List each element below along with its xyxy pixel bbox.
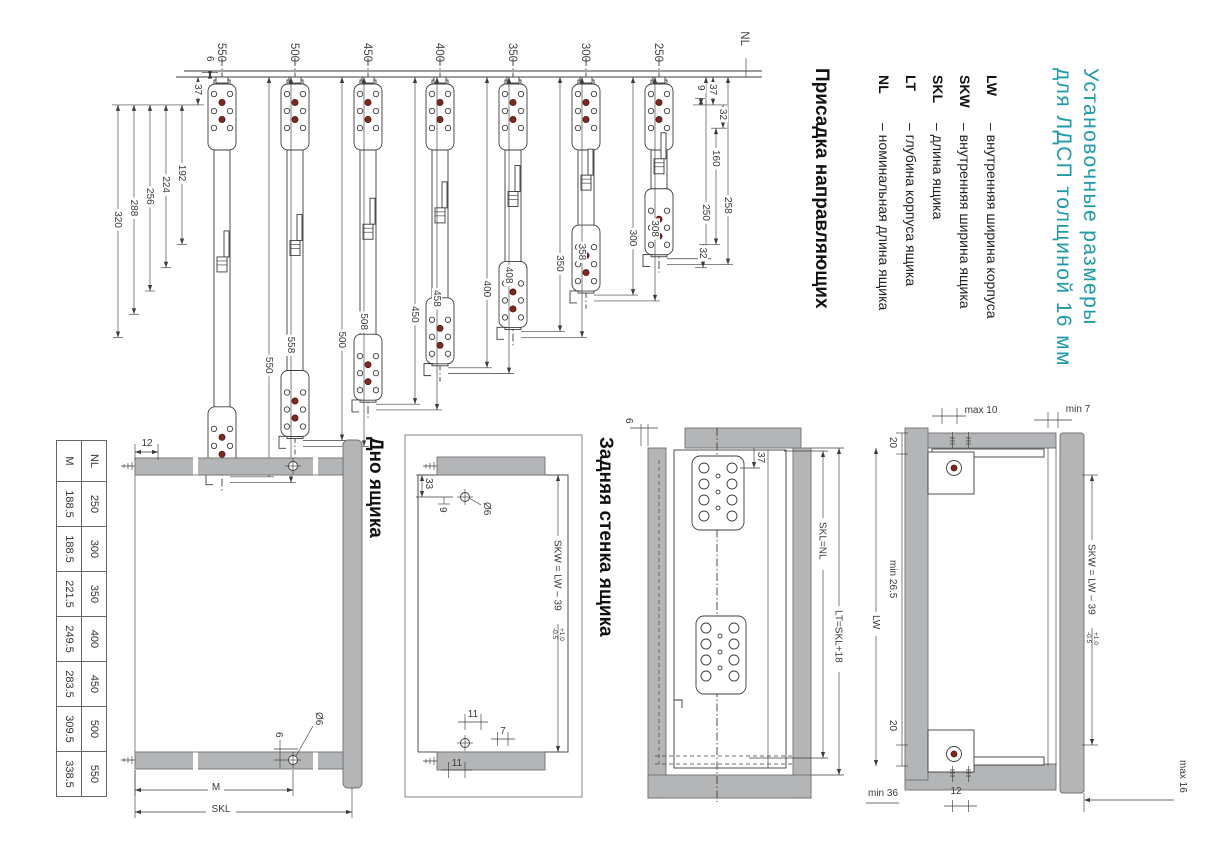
dim-label: 9 — [695, 85, 706, 91]
side-view-diagram: SKL=NL LT=SKL+18 37 6 — [619, 405, 864, 815]
table-value-cell: 300 — [82, 527, 107, 572]
table-value-cell: 188.5 — [57, 482, 82, 527]
legend-abbr: LT — [903, 75, 919, 123]
dim-label: 558 — [285, 337, 296, 354]
nl-m-table-container: NL250300350400450500550M188.5188.5221.52… — [56, 440, 107, 797]
dim-label: 160 — [710, 150, 721, 167]
front-facade-panel — [1060, 433, 1084, 793]
dim-label: SKL — [212, 804, 231, 815]
dim-label: 12 — [141, 438, 153, 449]
dim-label: min 36 — [868, 788, 898, 799]
screw-icon — [423, 462, 437, 470]
cabinet-bottom-panel — [648, 448, 666, 798]
legend-abbr: SKL — [930, 75, 946, 123]
table-value-cell: 550 — [82, 752, 107, 797]
dim-label: 320 — [112, 211, 123, 228]
dim-label: 508 — [358, 313, 369, 330]
legend-item: LT– глубина корпуса ящика — [903, 75, 919, 286]
drawer-front-panel — [685, 428, 801, 448]
legend-item: SKW– внутренняя ширина ящика — [957, 75, 973, 309]
rail-row-label: 400 — [433, 43, 445, 62]
table-value-cell: 250 — [82, 482, 107, 527]
dim-label: SKW = LW – 39 — [1086, 544, 1097, 615]
dim-label: M — [212, 782, 220, 793]
rail-row-label: 500 — [288, 43, 300, 62]
screw-icon — [121, 756, 135, 764]
tolerance-upper: +1.0 — [558, 628, 565, 641]
dim-label: SKW = LW – 39 — [552, 540, 563, 611]
table-header-cell: M — [57, 441, 82, 482]
dim-label: 256 — [144, 188, 155, 205]
dim-label: 358 — [576, 244, 587, 261]
rail-row-label: 250 — [652, 43, 664, 62]
dim-label: 224 — [160, 176, 171, 193]
rails-axis-label: NL — [738, 31, 750, 46]
dim-label: max 16 — [1177, 760, 1188, 793]
dim-label: 308 — [649, 220, 660, 237]
dim-label: 11 — [452, 758, 463, 769]
dim-label: 408 — [503, 267, 514, 284]
table-value-cell: 221.5 — [57, 572, 82, 617]
side-wall-right — [135, 752, 343, 769]
page: Установочные размеры для ЛДСП толщиной 1… — [0, 0, 1224, 858]
rail-row-label: 550 — [215, 43, 227, 62]
legend-item: NL– номинальная длина ящика — [876, 75, 892, 310]
dim-label: 6 — [273, 732, 284, 738]
dim-label: 32 — [697, 247, 708, 259]
tolerance-lower: -0.5 — [551, 628, 558, 640]
legend-desc: – глубина корпуса ящика — [903, 123, 919, 286]
side-wall-left — [437, 457, 545, 475]
table-value-cell: 188.5 — [57, 527, 82, 572]
front-panel — [343, 440, 362, 788]
legend-abbr: NL — [876, 75, 892, 123]
dim-label: 20 — [887, 437, 898, 449]
legend-abbr: LW — [984, 75, 1000, 123]
rail-row-label: 450 — [361, 43, 373, 62]
cabinet-back — [648, 775, 811, 798]
dim-label: 7 — [500, 726, 506, 737]
table-header-cell: NL — [82, 441, 107, 482]
dim-label: SKL=NL — [817, 522, 828, 560]
legend-desc: – длина ящика — [930, 123, 946, 219]
dim-label: 300 — [627, 230, 638, 247]
table-value-cell: 309.5 — [57, 707, 82, 752]
dim-label: 400 — [481, 281, 492, 298]
cabinet-top-panel — [793, 448, 811, 798]
table-value-cell: 338.5 — [57, 752, 82, 797]
dim-label: 500 — [336, 331, 347, 348]
dim-label: 192 — [176, 165, 187, 182]
dim-label: 11 — [468, 709, 479, 720]
rail-row-label: 350 — [506, 43, 518, 62]
dim-label: LW — [870, 615, 881, 630]
back-wall-panel — [418, 475, 568, 752]
dim-label: 6 — [204, 56, 215, 62]
table-value-cell: 249.5 — [57, 617, 82, 662]
tolerance-lower: -0.5 — [1085, 632, 1092, 644]
table-value-cell: 283.5 — [57, 662, 82, 707]
screw-icon — [423, 757, 437, 765]
rail-row-label: 300 — [579, 43, 591, 62]
table-value-cell: 450 — [82, 662, 107, 707]
dim-label: min 7 — [1066, 404, 1091, 415]
rotated-sheet: Установочные размеры для ЛДСП толщиной 1… — [0, 0, 1224, 858]
cabinet-back-panel — [905, 428, 928, 780]
legend-item: LW– внутренняя ширина корпуса — [984, 75, 1000, 318]
rails-heading: Присадка направляющих — [810, 68, 832, 309]
legend-desc: – номинальная длина ящика — [876, 123, 892, 310]
dim-label: 32 — [717, 109, 728, 121]
dim-label: 12 — [950, 786, 962, 797]
table-value-cell: 400 — [82, 617, 107, 662]
dim-label: 450 — [409, 306, 420, 323]
dim-label: 37 — [192, 84, 203, 96]
dim-label: 9 — [437, 507, 448, 513]
dim-label: 20 — [887, 720, 898, 732]
dim-label: 550 — [263, 357, 274, 374]
screw-icon — [121, 462, 135, 470]
legend-desc: – внутренняя ширина корпуса — [984, 123, 1000, 318]
table-value-cell: 500 — [82, 707, 107, 752]
dim-label: 37 — [707, 84, 718, 96]
legend-desc: – внутренняя ширина ящика — [957, 123, 973, 309]
plan-view-diagram: 20 min 26.5 20 LW max 10 min 7 min 36 12… — [862, 395, 1214, 825]
dim-label: 288 — [128, 200, 139, 217]
dim-label: LT=SKL+18 — [833, 610, 844, 663]
dim-label: 6 — [623, 418, 634, 424]
dim-label: 258 — [722, 197, 733, 214]
back-wall-diagram: SKW = LW – 39 +1.0 -0.5 33 9 Ø6 11 7 11 — [384, 430, 624, 810]
legend-abbr: SKW — [957, 75, 973, 123]
page-title-line1: Установочные размеры — [1077, 68, 1104, 367]
bottom-panel — [135, 475, 343, 752]
dim-label: Ø6 — [481, 502, 492, 516]
page-title: Установочные размеры для ЛДСП толщиной 1… — [1050, 68, 1104, 367]
dim-label: 33 — [423, 478, 434, 490]
legend: LW– внутренняя ширина корпусаSKW– внутре… — [860, 75, 1000, 415]
dim-label: 458 — [431, 290, 442, 307]
dim-label: Ø6 — [313, 712, 324, 726]
dim-label: 350 — [554, 255, 565, 272]
dim-label: 250 — [700, 204, 711, 221]
dim-label: min 26.5 — [887, 560, 898, 599]
nl-m-table: NL250300350400450500550M188.5188.5221.52… — [56, 440, 107, 797]
table-value-cell: 350 — [82, 572, 107, 617]
legend-item: SKL– длина ящика — [930, 75, 946, 219]
tolerance-upper: +1.0 — [1092, 632, 1099, 645]
side-wall-left — [135, 458, 343, 475]
page-title-line2: для ЛДСП толщиной 16 мм — [1050, 68, 1077, 367]
dim-label: 37 — [755, 452, 766, 464]
dim-label: max 10 — [965, 405, 998, 416]
